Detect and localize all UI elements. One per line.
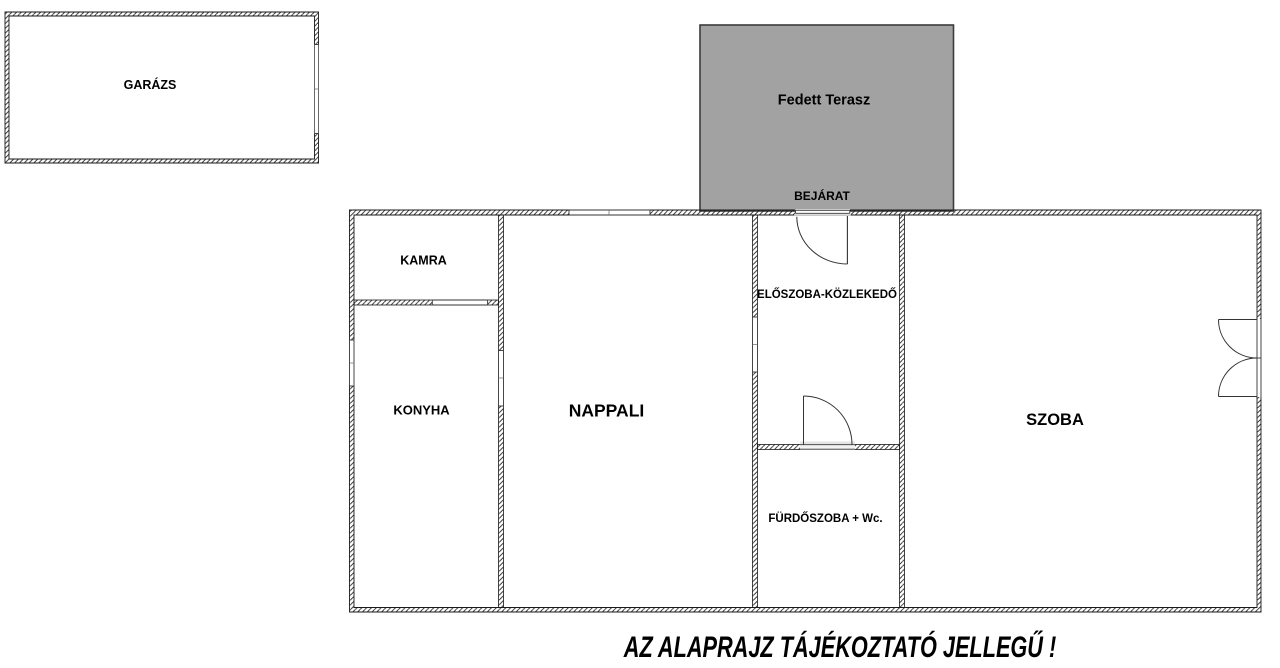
svg-text:FÜRDŐSZOBA + Wc.: FÜRDŐSZOBA + Wc. — [768, 512, 882, 525]
svg-text:KAMRA: KAMRA — [400, 254, 447, 268]
svg-text:AZ ALAPRAJZ TÁJÉKOZTATÓ JELLEG: AZ ALAPRAJZ TÁJÉKOZTATÓ JELLEGŰ ! — [623, 631, 1057, 664]
svg-text:Fedett Terasz: Fedett Terasz — [778, 93, 870, 109]
svg-text:NAPPALI: NAPPALI — [569, 401, 645, 421]
svg-text:BEJÁRAT: BEJÁRAT — [794, 188, 850, 203]
svg-text:SZOBA: SZOBA — [1026, 411, 1084, 429]
svg-text:GARÁZS: GARÁZS — [124, 77, 177, 92]
svg-text:ELŐSZOBA-KÖZLEKEDŐ: ELŐSZOBA-KÖZLEKEDŐ — [757, 288, 897, 301]
svg-text:KONYHA: KONYHA — [393, 403, 450, 418]
